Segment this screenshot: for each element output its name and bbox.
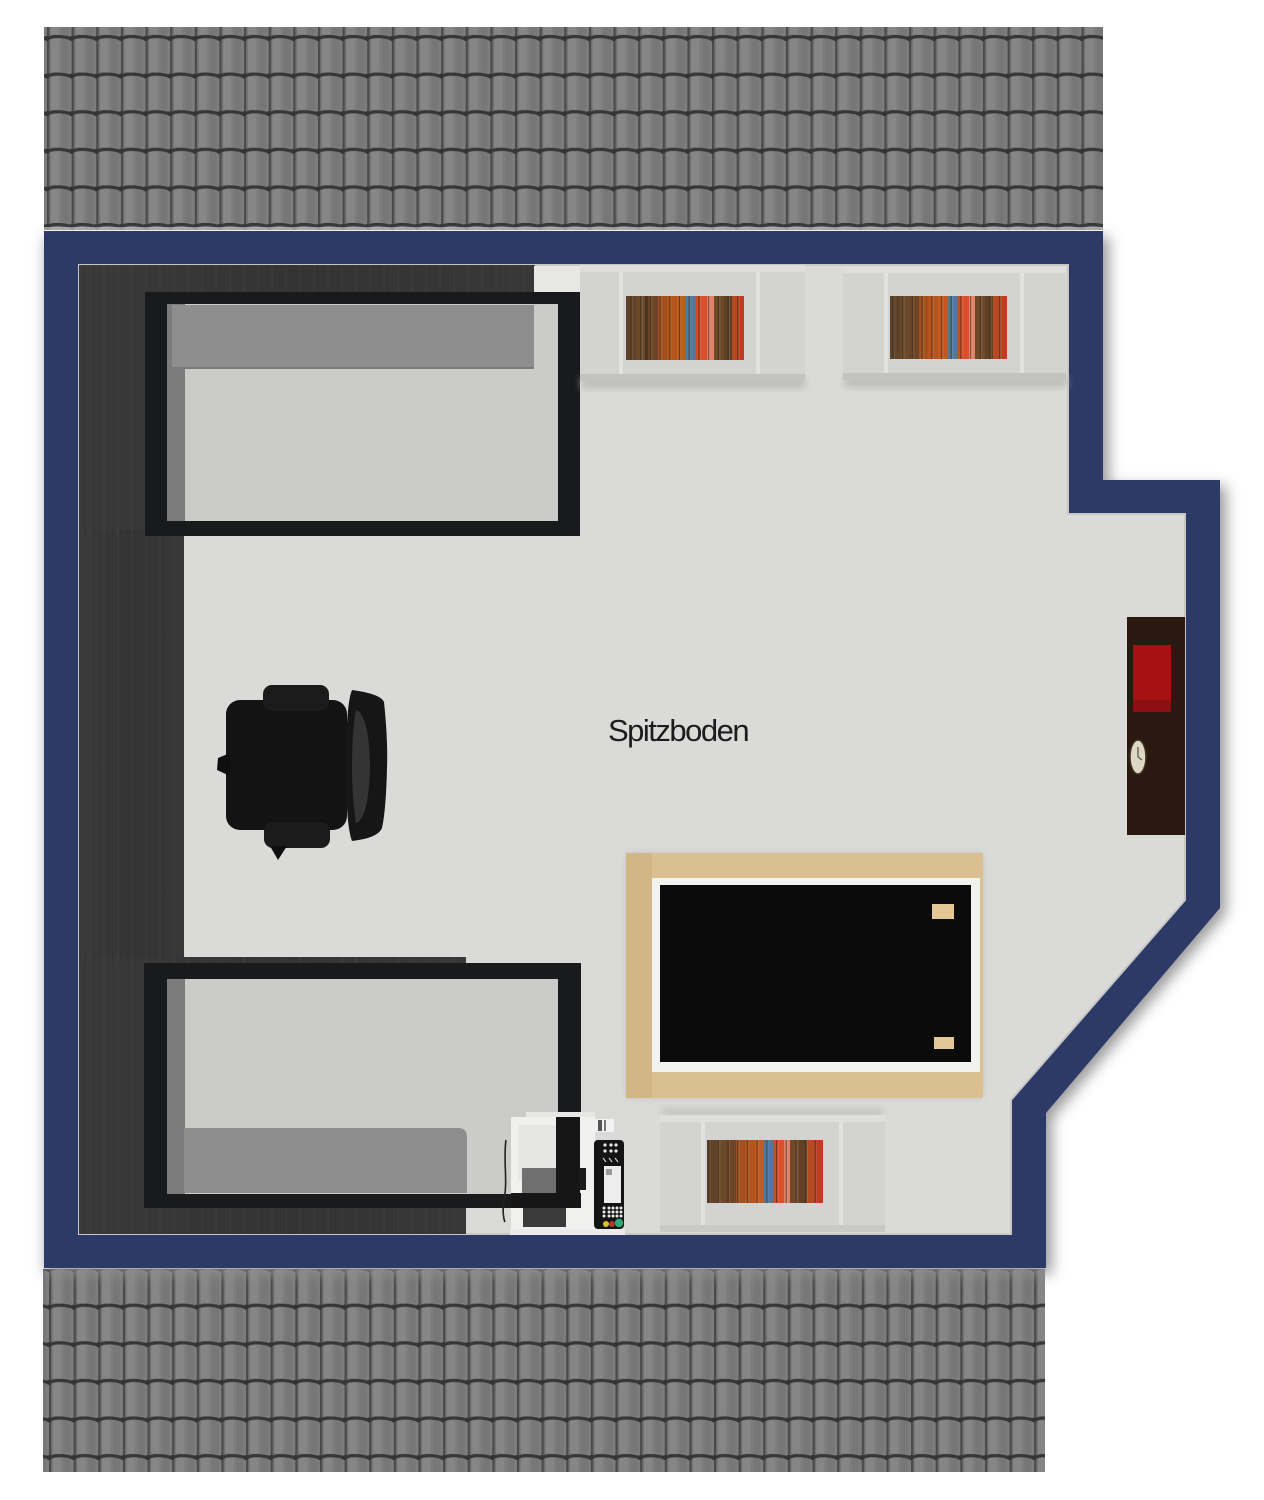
- svg-text:Spitzboden: Spitzboden: [608, 713, 748, 748]
